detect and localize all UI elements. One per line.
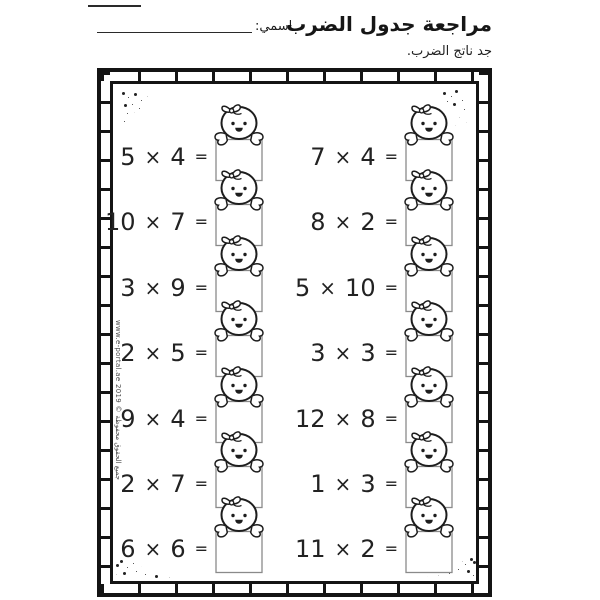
answer-area [404, 495, 454, 575]
name-field-group: اسمي: [97, 20, 292, 34]
worksheet-page: اسمي: مراجعة جدول الضرب جد ناتج الضرب. w… [0, 0, 600, 600]
equals-symbol: = [385, 212, 398, 231]
factor-a: 2 [120, 470, 135, 498]
chick-with-bow-icon [214, 495, 264, 575]
times-symbol: × [145, 407, 162, 431]
equals-symbol: = [385, 278, 398, 297]
answer-box [216, 532, 262, 573]
factor-b: 8 [360, 405, 375, 433]
times-symbol: × [335, 341, 352, 365]
factor-b: 7 [170, 470, 185, 498]
answer-area [214, 495, 264, 575]
equals-symbol: = [195, 343, 208, 362]
factor-a: 2 [120, 339, 135, 367]
factor-a: 3 [120, 274, 135, 302]
chick-with-bow-icon [404, 495, 454, 575]
equals-symbol: = [385, 409, 398, 428]
times-symbol: × [145, 210, 162, 234]
equals-symbol: = [385, 474, 398, 493]
factor-a: 6 [120, 535, 135, 563]
factor-a: 10 [105, 208, 136, 236]
factor-b: 3 [360, 470, 375, 498]
factor-a: 8 [310, 208, 325, 236]
equals-symbol: = [385, 539, 398, 558]
factor-b: 7 [170, 208, 185, 236]
factor-a: 5 [120, 143, 135, 171]
times-symbol: × [335, 210, 352, 234]
equals-symbol: = [195, 147, 208, 166]
brick-strip-bottom [101, 584, 488, 593]
times-symbol: × [335, 407, 352, 431]
factor-a: 1 [310, 470, 325, 498]
factor-a: 3 [310, 339, 325, 367]
equals-symbol: = [195, 409, 208, 428]
equation-text: 6 × 6 = [104, 527, 210, 570]
factor-b: 4 [170, 143, 185, 171]
times-symbol: × [335, 472, 352, 496]
corner-speckles-bottom-right [470, 558, 473, 561]
factor-a: 7 [310, 143, 325, 171]
factor-b: 4 [170, 405, 185, 433]
factor-a: 12 [295, 405, 326, 433]
answer-box [406, 532, 452, 573]
times-symbol: × [145, 145, 162, 169]
times-symbol: × [145, 276, 162, 300]
brick-strip-top [101, 72, 488, 81]
equals-symbol: = [385, 343, 398, 362]
times-symbol: × [145, 341, 162, 365]
factor-b: 5 [170, 339, 185, 367]
page-title: مراجعة جدول الضرب [286, 12, 492, 36]
factor-b: 2 [360, 535, 375, 563]
equation-text: 11 × 2 = [294, 527, 400, 570]
factor-b: 6 [170, 535, 185, 563]
equals-symbol: = [195, 278, 208, 297]
times-symbol: × [335, 537, 352, 561]
equals-symbol: = [195, 474, 208, 493]
factor-a: 11 [295, 535, 326, 563]
equals-symbol: = [195, 212, 208, 231]
equals-symbol: = [385, 147, 398, 166]
factor-a: 9 [120, 405, 135, 433]
problem-row: 11 × 2 = [294, 495, 454, 575]
times-symbol: × [145, 537, 162, 561]
times-symbol: × [335, 145, 352, 169]
factor-b: 2 [360, 208, 375, 236]
problem-row: 6 × 6 = [104, 495, 264, 575]
factor-b: 4 [360, 143, 375, 171]
name-write-line [97, 32, 252, 33]
factor-b: 10 [345, 274, 376, 302]
times-symbol: × [145, 472, 162, 496]
factor-a: 5 [295, 274, 310, 302]
corner-speckles-top-left [122, 92, 125, 95]
top-left-rule [88, 5, 141, 7]
factor-b: 3 [360, 339, 375, 367]
page-instruction: جد ناتج الضرب. [407, 44, 492, 59]
brick-strip-right [479, 72, 488, 593]
equals-symbol: = [195, 539, 208, 558]
times-symbol: × [319, 276, 336, 300]
factor-b: 9 [170, 274, 185, 302]
corner-speckles-top-right [455, 90, 458, 93]
